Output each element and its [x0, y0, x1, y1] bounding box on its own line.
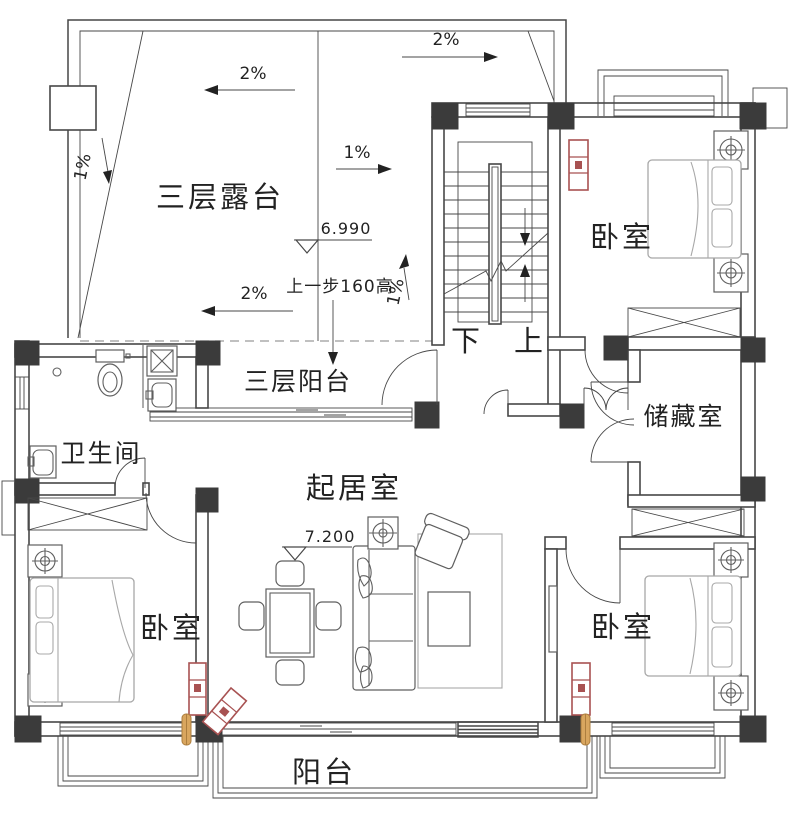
- bed: [30, 578, 134, 702]
- level-marker-terrace: 6.990: [294, 219, 372, 253]
- bedroom-tr-furniture: [648, 131, 748, 292]
- slope-label: 1%: [71, 152, 96, 183]
- floor-plan-drawing: 2% 2% 2% 1% 1% 1% 6.: [0, 0, 789, 828]
- washbasin-1: [146, 379, 176, 411]
- label-balcony3: 三层阳台: [244, 367, 352, 396]
- label-storage: 储藏室: [643, 402, 724, 431]
- closet-bedroom-tr: [628, 308, 740, 337]
- slope-2pct-top: 2%: [402, 30, 498, 62]
- slope-2pct-bottom: 2%: [201, 284, 293, 316]
- level-value: 7.200: [305, 527, 356, 546]
- level-value: 6.990: [321, 219, 372, 238]
- living-vestibule-double-door: [584, 388, 628, 410]
- staircase: [444, 142, 548, 324]
- closet-bedroom-bl: [28, 498, 147, 530]
- nightstand: [714, 254, 748, 292]
- slope-1pct-mid: 1%: [336, 143, 392, 174]
- bedroom-br-door: [566, 549, 620, 603]
- floor-plan-page: 2% 2% 2% 1% 1% 1% 6.: [0, 0, 789, 828]
- nightstand: [714, 676, 748, 710]
- room-labels: 三层露台 三层阳台 卫生间 起居室 储藏室 卧室 卧室 卧室 阳台 下 上: [60, 180, 724, 789]
- floor-drain: [53, 368, 61, 376]
- sofa: [353, 546, 415, 690]
- bedroom-bl-door: [146, 493, 196, 543]
- armchair: [411, 512, 471, 571]
- step-note: 上一步160高: [286, 277, 393, 365]
- flue-marker: [569, 140, 588, 190]
- label-stairs-down: 下: [451, 324, 483, 358]
- nightstand: [28, 545, 62, 577]
- closet-bedroom-br: [632, 509, 744, 536]
- flue-marker: [572, 663, 590, 715]
- bed: [645, 576, 741, 676]
- stairhall-corridor-door: [382, 350, 437, 405]
- stair-rail: [489, 164, 501, 324]
- parapet-pier: [50, 86, 96, 130]
- balcony-railing: [213, 736, 597, 798]
- slope-label: 2%: [433, 30, 460, 50]
- level-marker-living: 7.200: [282, 527, 355, 560]
- label-bedroom-bl: 卧室: [140, 611, 204, 645]
- step-note-label: 上一步160高: [286, 277, 393, 297]
- washbasin-2: [28, 446, 56, 478]
- shower-drain: [147, 346, 177, 376]
- label-living: 起居室: [306, 471, 402, 505]
- label-stairs-up: 上: [514, 324, 546, 358]
- slope-label: 2%: [241, 284, 268, 304]
- side-table-plant: [368, 517, 398, 549]
- label-bedroom-br: 卧室: [591, 610, 655, 644]
- right-bay-window: [600, 723, 725, 778]
- slope-label: 2%: [240, 64, 267, 84]
- tv-cabinet: [549, 586, 557, 652]
- slope-2pct-mid-left: 2%: [204, 64, 295, 95]
- label-bedroom-tr: 卧室: [590, 220, 654, 254]
- flue-marker: [189, 663, 206, 715]
- living-furniture: [239, 512, 502, 690]
- label-balcony: 阳台: [292, 755, 356, 789]
- dining-table-set: [239, 561, 341, 685]
- slope-label: 1%: [344, 143, 371, 163]
- slope-1pct-left: 1%: [71, 138, 112, 184]
- bedroom-bl-furniture: [28, 545, 134, 706]
- nightstand: [714, 543, 748, 577]
- corridor-window: [150, 408, 412, 421]
- stairhall-living-door: [484, 390, 508, 414]
- label-terrace: 三层露台: [156, 180, 284, 214]
- label-bathroom: 卫生间: [60, 439, 141, 468]
- bed: [648, 160, 741, 258]
